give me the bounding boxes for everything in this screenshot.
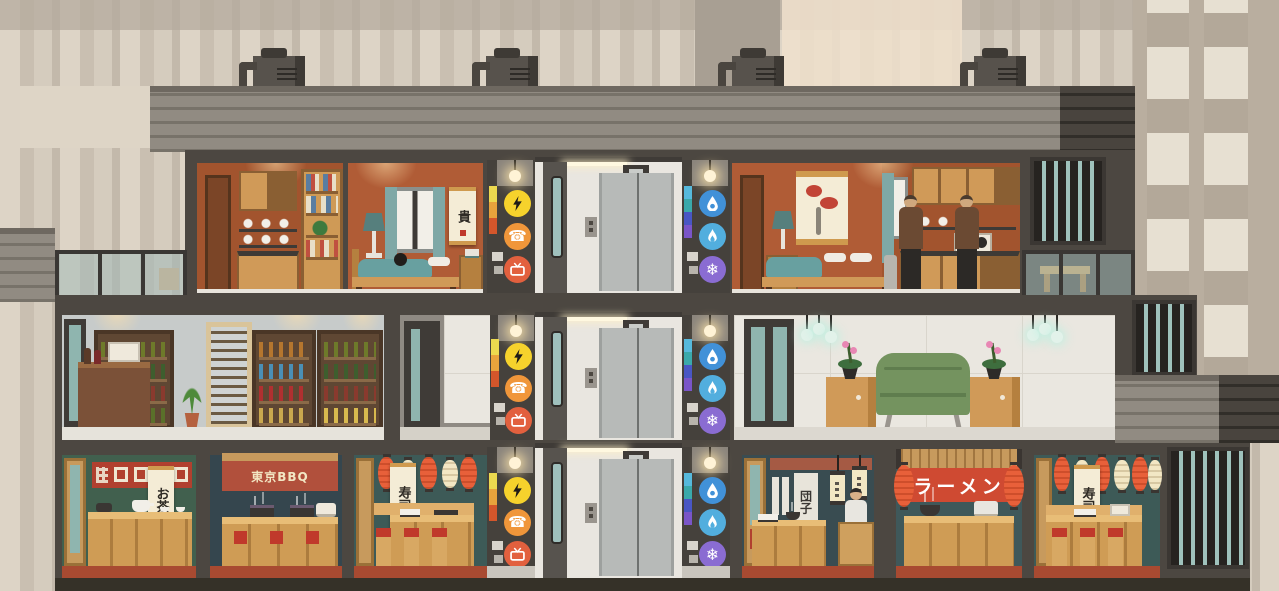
valve-box: [689, 555, 698, 563]
electricity-icon: [504, 477, 531, 504]
bonsai-plant: [306, 218, 338, 238]
kanji-scroll: 貴: [449, 187, 476, 245]
dish-shelf: [239, 215, 297, 232]
paper-lantern-red: [420, 457, 437, 489]
cable-tv-icon: [504, 541, 531, 568]
sushi-bar[interactable]: 寿司: [354, 455, 487, 578]
alarm-clock: [465, 249, 479, 258]
hallway[interactable]: [400, 315, 490, 440]
building-base: [55, 578, 1250, 591]
plumbing-shaft[interactable]: ❄: [682, 447, 730, 578]
gas-icon: [699, 375, 726, 402]
sushi-plate: [400, 509, 420, 517]
grill: [290, 505, 314, 517]
phone-icon: ☎: [504, 509, 531, 536]
menu-tag: [782, 477, 789, 515]
dango-counter: [752, 520, 826, 566]
rice-cooker: [316, 503, 336, 517]
sleeping-person: [394, 253, 407, 266]
louver-panel-middle: [1132, 300, 1196, 376]
resident-man: [894, 195, 928, 293]
breaker-box: [494, 555, 503, 563]
wine-rack: [206, 322, 252, 429]
elevator-doors[interactable]: [599, 173, 674, 291]
bed: [762, 249, 892, 293]
chef-podium: [838, 522, 874, 566]
lobby-lounge[interactable]: [734, 315, 1133, 440]
register: [1110, 504, 1130, 516]
elevator-doors[interactable]: [599, 328, 674, 438]
orchid: [978, 341, 1010, 379]
teapot: [132, 500, 150, 512]
electric-shaft[interactable]: ☎: [490, 315, 535, 440]
counter-stool[interactable]: [432, 537, 447, 566]
round-lantern-red: [1004, 465, 1024, 507]
ramen-bowl: [920, 505, 940, 516]
bbq-awning: 東京BBQ: [222, 461, 338, 491]
plumbing-shaft[interactable]: ❄: [682, 315, 730, 440]
hvac-icon: ❄: [699, 407, 726, 434]
curtain: [882, 173, 894, 263]
dango-shop[interactable]: 団子: [742, 455, 874, 578]
cable-tv-icon: [505, 407, 532, 434]
electric-shaft[interactable]: ☎: [487, 447, 535, 578]
water-icon: [699, 190, 726, 217]
hvac-roof-unit: [718, 48, 788, 88]
louver-panel-bottom: [1167, 447, 1249, 569]
round-lantern-red: [894, 465, 914, 507]
side-table: [970, 377, 1020, 427]
elevator-doors[interactable]: [599, 459, 674, 576]
dish-shelf: [239, 231, 297, 248]
side-table: [826, 377, 876, 427]
wine-shelf: [317, 330, 383, 429]
tea-counter: [88, 512, 192, 566]
hvac-roof-unit: [472, 48, 542, 88]
call-button-panel[interactable]: [585, 368, 597, 388]
wine-shop[interactable]: [62, 315, 384, 440]
gas-icon: [699, 223, 726, 250]
hvac-icon: ❄: [699, 256, 726, 283]
kettle: [96, 503, 112, 512]
chair-cushion: [234, 531, 247, 544]
paper-lantern-cream: [442, 460, 458, 488]
grill: [250, 505, 274, 517]
elevator[interactable]: [535, 443, 682, 578]
apartment-left[interactable]: 貴: [197, 163, 483, 293]
electricity-icon: [504, 190, 531, 217]
bonsai-scroll: [796, 171, 848, 245]
cash-register: [108, 342, 140, 362]
counter-stool[interactable]: [1080, 537, 1095, 566]
tea-house[interactable]: お茶: [62, 455, 196, 578]
teacup: [160, 507, 169, 512]
left-neighbor-cornice: [0, 228, 55, 302]
bookshelf: [301, 169, 343, 293]
sushi-tray: [434, 510, 458, 515]
building-cross-section: 貴: [0, 0, 1279, 591]
counter-stool[interactable]: [404, 537, 419, 566]
counter-stool[interactable]: [1052, 537, 1067, 566]
hallway-door[interactable]: [404, 321, 440, 433]
elevator[interactable]: [535, 312, 682, 440]
balcony-right: [1022, 246, 1135, 295]
paper-lantern-cream: [1148, 460, 1162, 490]
valve-box: [687, 541, 698, 550]
valve-box: [687, 403, 698, 412]
counter-stool[interactable]: [376, 537, 391, 566]
liquor-shelf: [252, 330, 316, 429]
ramen-shop[interactable]: ラーメン: [896, 455, 1022, 578]
sushi-bar-2[interactable]: 寿司: [1034, 455, 1160, 578]
ceiling-light: [355, 163, 417, 189]
breaker-box: [492, 252, 503, 261]
chair-cushion: [306, 531, 319, 544]
valve-box: [687, 252, 698, 261]
chair-cushion: [270, 531, 283, 544]
teacup: [176, 507, 185, 512]
background-peach-block: [782, 0, 962, 88]
nightstand: [459, 255, 483, 293]
call-button-panel[interactable]: [585, 217, 597, 237]
bamboo-awning: [896, 449, 1022, 469]
elevator[interactable]: [535, 157, 682, 293]
electricity-icon: [505, 343, 532, 370]
background-top-band: [0, 0, 1279, 30]
hvac-roof-unit: [239, 48, 309, 88]
bedroom-window: [389, 187, 441, 253]
phone-icon: ☎: [505, 375, 532, 402]
breaker-box: [496, 417, 505, 425]
rice-cooker: [974, 501, 998, 517]
breaker-box: [494, 403, 505, 412]
bed: [352, 249, 460, 293]
hvac-roof-unit: [960, 48, 1030, 88]
cable-tv-icon: [504, 256, 531, 283]
water-icon: [699, 477, 726, 504]
potted-plant: [178, 385, 206, 429]
shop-counter: [78, 362, 150, 429]
balcony-left: [55, 246, 187, 295]
call-button-panel[interactable]: [585, 503, 597, 523]
upper-cabinet: [239, 171, 297, 211]
lower-cabinet: [237, 251, 299, 293]
valve-box: [689, 266, 698, 274]
right-neighbor-cornice: [1115, 375, 1279, 443]
water-icon: [699, 343, 726, 370]
menu-tag: [772, 477, 779, 515]
lobby-door[interactable]: [744, 319, 794, 429]
counter-stool[interactable]: [1108, 537, 1123, 566]
valve-box: [689, 417, 698, 425]
paper-lantern-red: [460, 457, 477, 489]
glass-railing: [55, 250, 187, 295]
sushi-plate: [1074, 509, 1096, 517]
louver-panel-top: [1030, 157, 1106, 245]
breaker-box: [492, 541, 503, 550]
paper-lantern-cream: [1114, 460, 1130, 490]
phone-icon: ☎: [504, 223, 531, 250]
resident-man: [950, 195, 984, 293]
background-light-block: [20, 86, 150, 148]
sofa: [876, 353, 970, 427]
paper-lantern-red: [1054, 457, 1070, 491]
shop-door[interactable]: [64, 458, 86, 566]
ramen-counter: [904, 516, 1014, 566]
glass-railing: [1022, 250, 1135, 295]
noren-banner: [92, 462, 192, 488]
electric-shaft[interactable]: ☎: [487, 160, 535, 293]
tokyo-bbq[interactable]: 東京BBQ: [210, 455, 342, 578]
hvac-icon: ❄: [699, 541, 726, 568]
breaker-box: [494, 266, 503, 274]
orchid: [834, 341, 866, 379]
roof-cornice: [150, 86, 1135, 152]
apartment-door[interactable]: [740, 175, 764, 293]
apartment-right[interactable]: [732, 163, 1020, 293]
gas-icon: [699, 509, 726, 536]
pendant-lights: [1024, 315, 1068, 359]
plate: [758, 514, 778, 522]
plumbing-shaft[interactable]: ❄: [682, 160, 730, 293]
apartment-door[interactable]: [205, 175, 231, 293]
paper-lantern-red: [1132, 457, 1148, 491]
